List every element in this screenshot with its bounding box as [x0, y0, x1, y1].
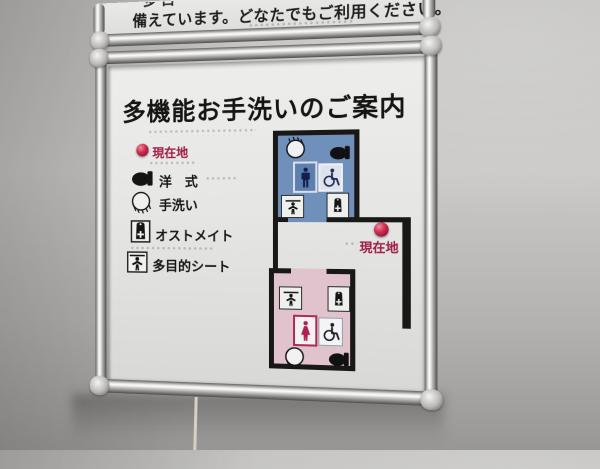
- hand-wash-icon: [283, 346, 306, 370]
- legend-label-western-toilet: 洋 式: [159, 171, 198, 191]
- braille-dots: [205, 175, 238, 181]
- frame-left-tube: [95, 53, 106, 386]
- ostomate-icon: [131, 220, 151, 243]
- braille-dots: [149, 160, 195, 167]
- frame-right-tube: [425, 42, 438, 400]
- restroom-guide-sign: 多機能お手洗いのご案内 現在地 洋 式: [108, 56, 424, 394]
- wall-segment: [269, 268, 274, 368]
- legend-label-care-sheet: 多目的シート: [152, 255, 230, 276]
- frame-corner-cap: [90, 49, 108, 68]
- care-sheet-icon: [281, 195, 304, 218]
- wall-segment: [273, 131, 278, 222]
- floor-plan: 現在地: [262, 124, 418, 381]
- wheelchair-icon: [318, 317, 343, 346]
- ostomate-icon: [328, 286, 351, 312]
- care-sheet-icon: [127, 249, 148, 276]
- current-location-dot: [374, 222, 389, 236]
- male-icon: [293, 161, 317, 192]
- hand-wash-icon: [130, 190, 153, 213]
- current-location-label: 現在地: [359, 237, 398, 257]
- current-location-dot: [136, 144, 148, 157]
- western-toilet-icon: [132, 170, 157, 187]
- wall-segment: [273, 222, 278, 273]
- western-toilet-icon: [330, 145, 354, 161]
- hand-wash-icon: [284, 136, 307, 159]
- upper-frame-left-cap: [91, 31, 109, 50]
- legend-label-hand-wash: 手洗い: [159, 194, 198, 214]
- sign-assembly: 多目 備えています。どなたでもご利用ください。 多機能お手洗いのご案内 現在地 …: [12, 0, 600, 469]
- wall-segment: [402, 217, 410, 329]
- upper-sign-clipped-line: 多目: [143, 0, 187, 7]
- wall-segment: [354, 129, 359, 222]
- care-sheet-icon: [279, 286, 302, 310]
- frame-corner-cap: [90, 376, 109, 396]
- legend: 現在地 洋 式: [108, 61, 262, 387]
- legend-label-current-location: 現在地: [152, 142, 188, 161]
- wheelchair-icon: [318, 163, 343, 192]
- ostomate-icon: [327, 193, 350, 218]
- female-icon: [293, 315, 317, 347]
- braille-dots: [344, 241, 357, 248]
- upper-frame-right-cap: [419, 17, 440, 38]
- frame-corner-cap: [420, 389, 442, 411]
- legend-label-ostomate: オストメイト: [155, 225, 233, 245]
- western-toilet-icon: [329, 351, 353, 367]
- frame-corner-cap: [420, 35, 441, 55]
